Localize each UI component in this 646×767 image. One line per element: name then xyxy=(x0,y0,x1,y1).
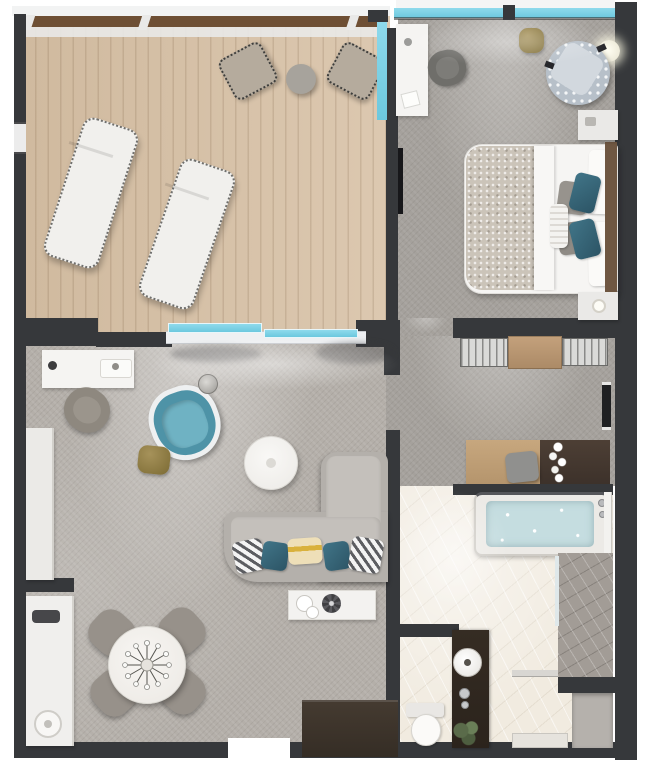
tv xyxy=(398,148,403,214)
balcony-glass-frame xyxy=(368,10,388,22)
glass-rail xyxy=(512,670,558,676)
entry-threshold xyxy=(512,733,568,748)
wall-balcony-left-top xyxy=(14,14,26,122)
desk-item xyxy=(404,38,412,46)
headboard xyxy=(605,142,617,292)
wall-living-left xyxy=(14,336,26,750)
wall-bench-stub xyxy=(22,578,74,592)
wall-washroom xyxy=(395,624,459,637)
towel-rail xyxy=(604,492,612,556)
bathtub-water xyxy=(486,501,594,547)
window-mullion xyxy=(503,5,515,20)
nightstand-item xyxy=(585,117,596,126)
wardrobe-unit xyxy=(562,338,608,366)
wardrobe-center xyxy=(508,336,562,369)
shower xyxy=(558,553,613,677)
counter-plate xyxy=(306,606,319,619)
vanity-flowers xyxy=(548,442,568,484)
window-bench xyxy=(26,428,54,580)
balcony-left-window xyxy=(14,122,26,154)
wall-right xyxy=(615,2,637,760)
living-desk-item xyxy=(48,361,57,370)
shower-niche xyxy=(572,693,613,748)
railing-outer xyxy=(12,6,390,16)
bottom-wall-opening xyxy=(228,738,290,767)
sliding-door-panel xyxy=(168,323,262,333)
coffee-table-center xyxy=(266,458,276,468)
sliding-door-panel xyxy=(264,329,358,338)
sofa-pillow-teal xyxy=(322,540,352,571)
counter-rosette xyxy=(322,594,341,613)
washroom-accessory xyxy=(461,701,469,709)
balcony-side-table xyxy=(286,64,316,94)
washroom-plant xyxy=(452,720,482,746)
corridor-floor-doorway xyxy=(398,318,454,338)
vanity-stool xyxy=(505,450,540,483)
corridor-mirror xyxy=(602,382,611,430)
balcony-glass-divider xyxy=(377,18,387,120)
nightstand-lamp xyxy=(592,299,606,313)
bed-throw xyxy=(466,146,538,290)
sofa-pillow-teal xyxy=(260,540,290,571)
sofa-pillow-cream xyxy=(287,537,323,565)
wall-below-balcony xyxy=(96,332,172,347)
living-floor-lamp xyxy=(198,374,218,394)
wardrobe-unit xyxy=(460,338,508,367)
railing-glass xyxy=(22,27,382,37)
wall-bedroom-bottom xyxy=(453,318,617,338)
curtain-shadow xyxy=(170,346,262,362)
bedroom-ottoman xyxy=(519,28,544,53)
entry-cabinet xyxy=(302,700,398,757)
nightstand xyxy=(578,110,618,140)
living-desk-bottle xyxy=(112,363,119,370)
bed-pillow-ruffle xyxy=(550,204,568,248)
sink-drain xyxy=(464,659,471,666)
wall-living-corner xyxy=(14,318,98,346)
wall-shower-bottom xyxy=(558,677,616,693)
railing-wood xyxy=(22,16,382,27)
living-side-table xyxy=(137,444,172,475)
floor-plan xyxy=(0,0,646,767)
minibar-handle xyxy=(32,610,60,623)
washroom-accessory xyxy=(459,688,470,699)
kettle-lid xyxy=(44,720,52,728)
wall-balcony-left-bottom xyxy=(14,154,26,336)
curtain-shadow xyxy=(316,342,394,364)
toilet-bowl xyxy=(411,714,441,746)
sofa-pillow-chevron xyxy=(347,535,384,574)
shower-glass xyxy=(555,556,559,626)
dining-centerpiece xyxy=(116,634,178,696)
